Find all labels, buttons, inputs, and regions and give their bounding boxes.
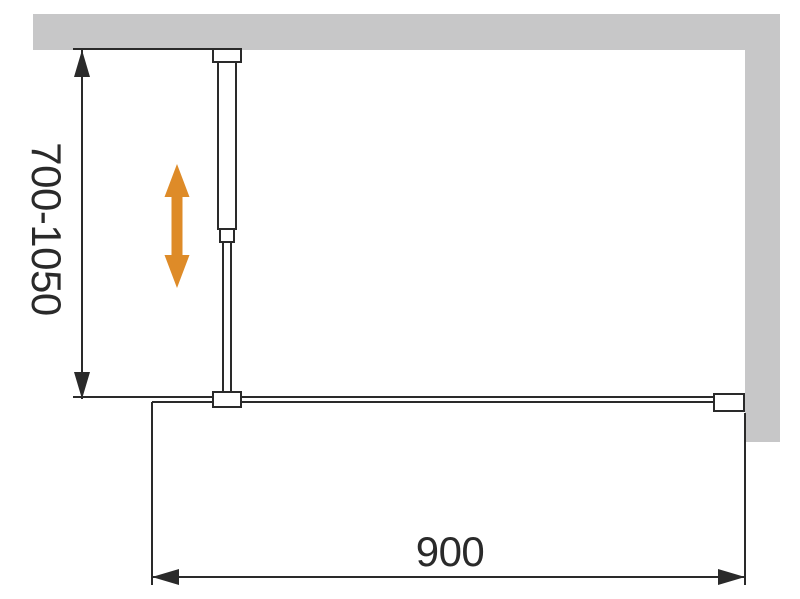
support-bar-collar xyxy=(219,228,235,243)
extension-line-top xyxy=(73,48,214,50)
arrowhead-down-icon xyxy=(74,372,90,399)
arrowhead-right-icon xyxy=(718,569,745,585)
support-bar-inner-tube xyxy=(222,240,232,398)
wall-top xyxy=(33,14,780,50)
height-range-label: 700-1050 xyxy=(25,142,67,316)
arrowhead-up-icon xyxy=(74,50,90,77)
wall-right xyxy=(745,50,780,442)
arrowhead-left-icon xyxy=(152,569,179,585)
glass-clamp xyxy=(212,391,242,408)
adjust-arrow-icon xyxy=(160,160,200,300)
support-bar-outer-tube xyxy=(217,60,237,230)
vertical-dimension-line xyxy=(81,50,83,399)
extension-line-right xyxy=(744,413,746,585)
glass-panel-top-edge xyxy=(73,396,714,398)
extension-line-left xyxy=(151,402,153,585)
horizontal-dimension-line xyxy=(152,576,745,578)
wall-bracket xyxy=(212,48,242,63)
wall-profile-bracket xyxy=(713,393,745,412)
diagram-canvas: 700-1050 900 xyxy=(0,0,800,599)
width-label: 900 xyxy=(416,531,485,573)
